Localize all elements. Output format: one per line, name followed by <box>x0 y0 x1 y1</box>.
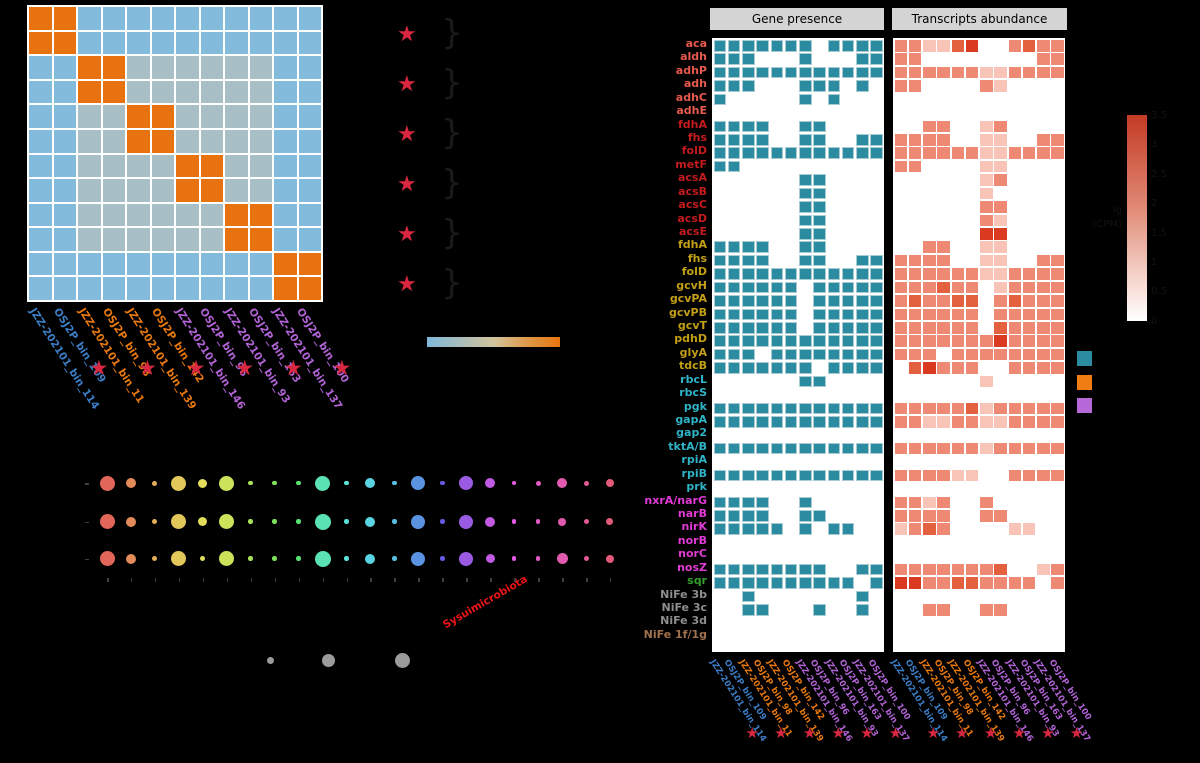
highlighted-phylum-label: Sysuimicrobiota <box>441 573 530 631</box>
presence-cell <box>856 40 869 52</box>
ani-cell <box>274 277 297 300</box>
transcript-cell <box>980 161 993 173</box>
presence-cell <box>714 510 727 522</box>
ani-cell <box>78 228 101 251</box>
transcript-cell <box>1037 403 1050 415</box>
ani-cell <box>299 7 322 30</box>
transcript-cell <box>994 282 1007 294</box>
ani-cell <box>29 7 52 30</box>
star-icon: ★ <box>1070 726 1083 741</box>
transcript-cell <box>1037 268 1050 280</box>
transcript-cell <box>937 470 950 482</box>
presence-cell <box>856 67 869 79</box>
abundance-dot <box>440 556 445 561</box>
presence-cell <box>714 349 727 361</box>
transcripts-colorbar <box>1127 115 1147 321</box>
abundance-dot <box>365 478 375 488</box>
presence-cell <box>714 309 727 321</box>
presence-cell <box>728 309 741 321</box>
abundance-dot <box>272 481 277 486</box>
presence-cell <box>799 497 812 509</box>
presence-cell <box>742 604 755 616</box>
gene-name-label: nirK <box>615 521 707 533</box>
gene-name-label: rbcS <box>615 387 707 399</box>
presence-cell <box>799 134 812 146</box>
transcript-cell <box>1009 443 1022 455</box>
colorbar-tick-label: 0 <box>1151 316 1157 327</box>
transcript-cell <box>937 255 950 267</box>
transcript-cell <box>1037 443 1050 455</box>
ani-cell <box>299 277 322 300</box>
colorbar-tick-label: 3.5 <box>1151 110 1167 121</box>
transcript-cell <box>895 564 908 576</box>
presence-cell <box>728 577 741 589</box>
presence-cell <box>714 147 727 159</box>
transcript-cell <box>909 147 922 159</box>
ani-cell <box>29 130 52 153</box>
transcript-cell <box>923 241 936 253</box>
gene-name-label: NiFe 1f/1g <box>615 629 707 641</box>
abundance-dot <box>171 476 186 491</box>
transcript-cell <box>1009 282 1022 294</box>
ani-cell <box>103 81 126 104</box>
presence-cell <box>856 591 869 603</box>
presence-cell <box>728 322 741 334</box>
presence-cell <box>842 523 855 535</box>
abundance-dot <box>459 515 473 529</box>
transcript-cell <box>966 564 979 576</box>
presence-cell <box>813 147 826 159</box>
abundance-dot <box>584 519 589 524</box>
presence-cell <box>813 215 826 227</box>
presence-cell <box>813 188 826 200</box>
transcript-cell <box>1051 322 1064 334</box>
abundance-dot <box>485 478 495 488</box>
presence-cell <box>756 335 769 347</box>
ani-cell <box>103 228 126 251</box>
presence-cell <box>842 362 855 374</box>
transcript-cell <box>1023 523 1036 535</box>
transcript-cell <box>909 349 922 361</box>
abundance-dot <box>557 478 567 488</box>
presence-cell <box>742 577 755 589</box>
presence-cell <box>842 295 855 307</box>
transcript-cell <box>1051 295 1064 307</box>
transcript-cell <box>966 147 979 159</box>
brace-icon: } <box>441 166 463 200</box>
presence-cell <box>813 564 826 576</box>
presence-cell <box>813 174 826 186</box>
transcript-cell <box>937 241 950 253</box>
gene-name-label: gcvPB <box>615 307 707 319</box>
ani-cell <box>250 81 273 104</box>
presence-cell <box>870 67 883 79</box>
presence-cell <box>728 523 741 535</box>
presence-cell <box>842 443 855 455</box>
ani-cell <box>250 179 273 202</box>
presence-cell <box>728 134 741 146</box>
transcript-cell <box>937 309 950 321</box>
transcript-cell <box>923 497 936 509</box>
transcript-cell <box>952 564 965 576</box>
transcript-cell <box>937 282 950 294</box>
presence-cell <box>785 443 798 455</box>
ani-cell <box>152 253 175 276</box>
ani-cell <box>299 204 322 227</box>
transcript-cell <box>923 268 936 280</box>
gene-name-label: glyA <box>615 347 707 359</box>
presence-cell <box>714 523 727 535</box>
transcript-cell <box>909 67 922 79</box>
presence-cell <box>870 362 883 374</box>
star-icon: ★ <box>926 726 939 741</box>
ani-cell <box>225 105 248 128</box>
transcript-cell <box>994 201 1007 213</box>
presence-cell <box>785 470 798 482</box>
transcript-cell <box>980 335 993 347</box>
presence-cell <box>828 470 841 482</box>
gene-name-label: acsA <box>615 172 707 184</box>
ani-cell <box>127 81 150 104</box>
presence-cell <box>870 268 883 280</box>
transcript-cell <box>1037 40 1050 52</box>
star-icon: ★ <box>235 358 254 379</box>
brace-icon: } <box>441 66 463 100</box>
ani-cell <box>225 179 248 202</box>
transcript-cell <box>994 147 1007 159</box>
presence-cell <box>771 416 784 428</box>
star-icon: ★ <box>745 726 758 741</box>
ani-cell <box>103 56 126 79</box>
presence-cell <box>771 295 784 307</box>
presence-cell <box>799 201 812 213</box>
colorbar-tick-label: 2.5 <box>1151 169 1167 180</box>
presence-cell <box>756 577 769 589</box>
transcript-cell <box>1009 309 1022 321</box>
transcript-cell <box>909 510 922 522</box>
transcript-cell <box>952 67 965 79</box>
presence-cell <box>728 416 741 428</box>
presence-cell <box>756 241 769 253</box>
transcript-cell <box>966 470 979 482</box>
presence-cell <box>799 523 812 535</box>
presence-cell <box>742 80 755 92</box>
presence-cell <box>856 80 869 92</box>
abundance-dot <box>485 517 495 527</box>
gene-name-label: fdhA <box>615 239 707 251</box>
abundance-dot <box>126 517 136 527</box>
abundance-dot <box>100 476 115 491</box>
ani-cell <box>78 179 101 202</box>
transcript-cell <box>980 215 993 227</box>
star-icon: ★ <box>984 726 997 741</box>
ani-cell <box>299 32 322 55</box>
x-axis-tick <box>394 578 396 582</box>
ani-cell <box>176 7 199 30</box>
transcript-cell <box>1051 335 1064 347</box>
presence-cell <box>813 228 826 240</box>
ani-cell <box>299 228 322 251</box>
transcript-cell <box>952 362 965 374</box>
ani-cell <box>127 253 150 276</box>
colorbar-tick-label: 1 <box>1151 257 1157 268</box>
presence-cell <box>785 564 798 576</box>
gene-name-label: rpiB <box>615 468 707 480</box>
transcript-cell <box>1023 577 1036 589</box>
presence-cell <box>785 416 798 428</box>
ani-cell <box>103 253 126 276</box>
transcript-cell <box>1051 67 1064 79</box>
transcript-cell <box>923 335 936 347</box>
ani-cell <box>29 253 52 276</box>
presence-cell <box>828 309 841 321</box>
transcript-cell <box>937 147 950 159</box>
ani-cell <box>299 56 322 79</box>
ani-cell <box>78 277 101 300</box>
x-axis-tick <box>586 578 588 582</box>
abundance-dot <box>152 519 157 524</box>
ani-cell <box>78 81 101 104</box>
transcript-cell <box>1037 349 1050 361</box>
gene-name-label: norB <box>615 535 707 547</box>
star-icon: ★ <box>774 726 787 741</box>
ani-cell <box>274 32 297 55</box>
ani-cell <box>201 105 224 128</box>
presence-cell <box>756 510 769 522</box>
abundance-dot <box>365 517 375 527</box>
gene-name-label: folD <box>615 266 707 278</box>
ani-cell <box>78 204 101 227</box>
presence-cell <box>828 362 841 374</box>
presence-cell <box>756 147 769 159</box>
gene-name-label: NiFe 3b <box>615 589 707 601</box>
presence-cell <box>870 335 883 347</box>
abundance-dot <box>219 514 234 529</box>
ani-cell <box>274 81 297 104</box>
presence-cell <box>728 80 741 92</box>
ani-cell <box>54 155 77 178</box>
presence-cell <box>756 443 769 455</box>
abundance-dot <box>272 556 277 561</box>
ani-cell <box>29 56 52 79</box>
transcript-cell <box>980 604 993 616</box>
abundance-dot <box>486 554 495 563</box>
abundance-dot <box>557 553 568 564</box>
ani-cell <box>274 7 297 30</box>
presence-cell <box>785 40 798 52</box>
presence-cell <box>870 309 883 321</box>
ani-cell <box>225 81 248 104</box>
transcript-cell <box>952 470 965 482</box>
ani-cell <box>176 228 199 251</box>
figure-canvas: Gene presence Transcripts abundance lg (… <box>0 0 1200 763</box>
presence-cell <box>742 134 755 146</box>
transcript-cell <box>909 443 922 455</box>
ani-cell <box>29 81 52 104</box>
presence-cell <box>828 94 841 106</box>
abundance-dot <box>219 476 234 491</box>
ani-cell <box>201 204 224 227</box>
presence-cell <box>785 403 798 415</box>
transcript-cell <box>994 577 1007 589</box>
presence-cell <box>799 349 812 361</box>
transcript-cell <box>1051 416 1064 428</box>
presence-cell <box>856 282 869 294</box>
presence-cell <box>799 53 812 65</box>
presence-cell <box>799 376 812 388</box>
abundance-dot <box>606 555 614 563</box>
presence-cell <box>771 309 784 321</box>
presence-cell <box>714 161 727 173</box>
presence-cell <box>870 349 883 361</box>
gene-name-label: folD <box>615 145 707 157</box>
presence-cell <box>785 349 798 361</box>
gene-name-label: pgk <box>615 401 707 413</box>
transcript-cell <box>1009 577 1022 589</box>
transcript-cell <box>994 228 1007 240</box>
transcript-cell <box>952 147 965 159</box>
abundance-dot <box>315 476 330 491</box>
transcript-cell <box>937 268 950 280</box>
presence-cell <box>785 67 798 79</box>
transcript-cell <box>895 268 908 280</box>
presence-cell <box>799 147 812 159</box>
presence-cell <box>714 416 727 428</box>
gene-name-label: sqr <box>615 575 707 587</box>
gene-name-label: gcvT <box>615 320 707 332</box>
transcript-cell <box>909 523 922 535</box>
gene-name-label: tktA/B <box>615 441 707 453</box>
presence-cell <box>856 134 869 146</box>
transcript-cell <box>909 362 922 374</box>
presence-cell <box>785 362 798 374</box>
presence-cell <box>756 309 769 321</box>
ani-cell <box>225 155 248 178</box>
presence-cell <box>728 53 741 65</box>
ani-cell <box>176 179 199 202</box>
transcript-cell <box>980 403 993 415</box>
presence-cell <box>742 40 755 52</box>
x-axis-tick <box>227 578 229 582</box>
abundance-dot <box>365 554 375 564</box>
gene-name-label: fhs <box>615 253 707 265</box>
gene-name-label: acsD <box>615 213 707 225</box>
presence-cell <box>870 255 883 267</box>
presence-cell <box>856 322 869 334</box>
presence-cell <box>742 282 755 294</box>
presence-cell <box>756 268 769 280</box>
presence-cell <box>785 577 798 589</box>
transcript-cell <box>895 443 908 455</box>
transcript-cell <box>909 282 922 294</box>
transcript-cell <box>1023 322 1036 334</box>
ani-cell <box>299 81 322 104</box>
size-legend-circle <box>322 654 335 667</box>
presence-cell <box>728 335 741 347</box>
transcript-cell <box>994 416 1007 428</box>
presence-cell <box>714 497 727 509</box>
transcript-cell <box>1023 268 1036 280</box>
transcript-cell <box>994 215 1007 227</box>
presence-cell <box>714 53 727 65</box>
transcript-cell <box>923 510 936 522</box>
x-axis-tick <box>275 578 277 582</box>
gene-name-label: gapA <box>615 414 707 426</box>
transcript-cell <box>1023 470 1036 482</box>
transcript-cell <box>980 268 993 280</box>
ani-cell <box>176 32 199 55</box>
transcript-cell <box>994 564 1007 576</box>
abundance-dot <box>344 556 349 561</box>
ani-cell <box>225 130 248 153</box>
presence-cell <box>870 295 883 307</box>
transcript-cell <box>980 67 993 79</box>
presence-cell <box>856 147 869 159</box>
presence-cell <box>842 577 855 589</box>
transcript-cell <box>895 309 908 321</box>
presence-cell <box>856 604 869 616</box>
ani-cell <box>54 253 77 276</box>
presence-cell <box>870 147 883 159</box>
gene-name-label: acsC <box>615 199 707 211</box>
presence-cell <box>856 268 869 280</box>
ani-cell <box>54 228 77 251</box>
presence-cell <box>842 470 855 482</box>
transcript-cell <box>923 470 936 482</box>
transcript-cell <box>1051 443 1064 455</box>
ani-cell <box>152 81 175 104</box>
presence-cell <box>799 470 812 482</box>
presence-cell <box>799 188 812 200</box>
ani-cell <box>274 253 297 276</box>
presence-cell <box>813 134 826 146</box>
abundance-dot <box>198 517 207 526</box>
ani-cell <box>127 7 150 30</box>
transcript-cell <box>1037 564 1050 576</box>
presence-cell <box>813 241 826 253</box>
abundance-dot <box>315 551 331 567</box>
abundance-dot <box>440 481 445 486</box>
x-axis-tick <box>490 578 492 582</box>
transcript-cell <box>1037 470 1050 482</box>
star-icon: ★ <box>803 726 816 741</box>
transcript-cell <box>1009 268 1022 280</box>
abundance-dot <box>248 556 253 561</box>
transcript-cell <box>1009 349 1022 361</box>
transcript-cell <box>994 309 1007 321</box>
presence-cell <box>828 295 841 307</box>
presence-cell <box>756 134 769 146</box>
transcript-cell <box>923 577 936 589</box>
ani-cell <box>274 204 297 227</box>
transcript-cell <box>952 295 965 307</box>
star-icon: ★ <box>1041 726 1054 741</box>
presence-cell <box>771 335 784 347</box>
ani-cell <box>250 56 273 79</box>
transcript-cell <box>1009 416 1022 428</box>
star-icon: ★ <box>397 274 417 296</box>
transcript-cell <box>1051 53 1064 65</box>
transcript-cell <box>923 523 936 535</box>
transcript-cell <box>994 67 1007 79</box>
presence-cell <box>756 362 769 374</box>
x-axis-tick <box>299 578 301 582</box>
presence-cell <box>714 335 727 347</box>
presence-cell <box>728 282 741 294</box>
transcript-cell <box>1037 134 1050 146</box>
ani-cell <box>250 130 273 153</box>
transcript-cell <box>994 295 1007 307</box>
